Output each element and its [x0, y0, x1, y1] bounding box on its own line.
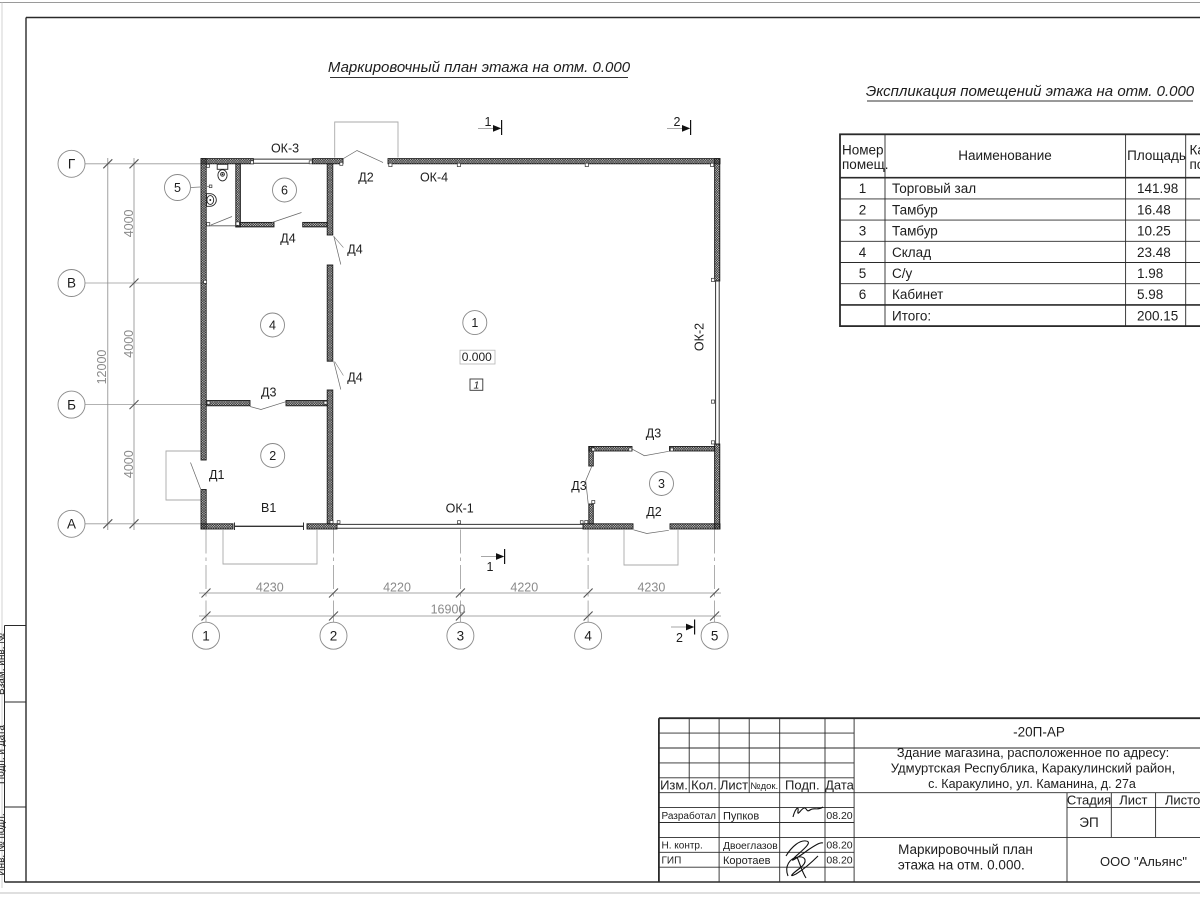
svg-text:Д3: Д3: [571, 479, 586, 493]
svg-text:Ка: Ка: [1190, 142, 1200, 157]
svg-text:141.98: 141.98: [1137, 181, 1178, 196]
svg-text:4000: 4000: [122, 209, 136, 237]
svg-text:№док.: №док.: [750, 781, 778, 792]
svg-text:2: 2: [269, 449, 276, 463]
svg-text:200.15: 200.15: [1137, 308, 1178, 323]
svg-text:08.20: 08.20: [826, 810, 852, 822]
svg-text:ОК-3: ОК-3: [271, 142, 299, 156]
svg-text:1: 1: [202, 629, 210, 644]
svg-text:Маркировочный план этажа на от: Маркировочный план этажа на отм. 0.000: [328, 59, 631, 76]
svg-text:Номер: Номер: [842, 142, 884, 157]
svg-text:5: 5: [174, 181, 181, 195]
svg-text:08.20: 08.20: [826, 855, 852, 867]
svg-text:2: 2: [330, 629, 338, 644]
svg-text:16900: 16900: [431, 603, 466, 617]
svg-text:4230: 4230: [256, 581, 284, 595]
svg-text:Площадь: Площадь: [1127, 148, 1186, 163]
svg-text:этажа на отм. 0.000.: этажа на отм. 0.000.: [898, 858, 1025, 873]
svg-text:Д4: Д4: [347, 370, 362, 384]
svg-text:Д3: Д3: [261, 385, 276, 399]
svg-text:2: 2: [674, 115, 681, 129]
svg-text:Подп.: Подп.: [785, 778, 820, 793]
svg-text:Коротаев: Коротаев: [723, 855, 771, 867]
svg-text:Тамбур: Тамбур: [892, 224, 938, 239]
svg-text:5: 5: [711, 629, 719, 644]
svg-text:4000: 4000: [122, 450, 136, 478]
svg-text:4: 4: [584, 629, 592, 644]
svg-text:В1: В1: [261, 501, 276, 515]
svg-text:Итого:: Итого:: [892, 308, 931, 323]
svg-text:Дата: Дата: [825, 778, 855, 793]
svg-text:4220: 4220: [510, 581, 538, 595]
svg-text:Двоеглазов: Двоеглазов: [723, 841, 778, 852]
svg-text:Инв. № подл.: Инв. № подл.: [0, 813, 7, 875]
svg-text:Подп. и дата: Подп. и дата: [0, 725, 7, 784]
svg-text:Б: Б: [67, 397, 76, 412]
svg-text:1: 1: [473, 379, 479, 391]
svg-text:0.000: 0.000: [462, 350, 492, 364]
svg-text:Тамбур: Тамбур: [892, 202, 938, 217]
svg-text:Торговый зал: Торговый зал: [892, 181, 976, 196]
svg-text:Лист: Лист: [720, 778, 748, 793]
svg-text:4: 4: [859, 245, 867, 260]
svg-text:Д1: Д1: [209, 468, 224, 482]
svg-text:Д4: Д4: [280, 232, 295, 246]
svg-text:Склад: Склад: [892, 245, 931, 260]
svg-text:ОК-4: ОК-4: [420, 171, 448, 185]
svg-text:Здание магазина, расположенное: Здание магазина, расположенное по адресу…: [897, 745, 1169, 760]
svg-text:с. Каракулино, ул. Каманина, д: с. Каракулино, ул. Каманина, д. 27а: [928, 777, 1136, 791]
svg-text:Г: Г: [68, 157, 76, 172]
svg-text:1.98: 1.98: [1137, 266, 1163, 281]
svg-text:ЭП: ЭП: [1079, 815, 1098, 830]
svg-text:3: 3: [457, 629, 465, 644]
svg-text:С/у: С/у: [892, 266, 913, 281]
svg-text:2: 2: [676, 631, 683, 645]
svg-text:2: 2: [859, 202, 867, 217]
svg-text:Удмуртская Республика, Каракул: Удмуртская Республика, Каракулинский рай…: [891, 761, 1175, 776]
svg-text:Д2: Д2: [358, 171, 373, 185]
svg-text:16.48: 16.48: [1137, 202, 1171, 217]
svg-text:Кабинет: Кабинет: [892, 287, 943, 302]
svg-text:3: 3: [658, 477, 665, 491]
svg-text:Лист: Лист: [1119, 793, 1147, 808]
svg-text:1: 1: [487, 560, 494, 574]
svg-text:помещ.: помещ.: [842, 157, 888, 172]
svg-text:ГИП: ГИП: [662, 856, 682, 867]
svg-text:6: 6: [281, 184, 288, 198]
svg-text:Д4: Д4: [347, 242, 362, 256]
svg-text:Маркировочный план: Маркировочный план: [898, 842, 1033, 857]
svg-text:4: 4: [269, 319, 276, 333]
svg-text:ОК-1: ОК-1: [446, 501, 474, 515]
svg-text:-20П-АР: -20П-АР: [1013, 725, 1065, 740]
svg-text:3: 3: [859, 224, 867, 239]
svg-text:5: 5: [859, 266, 867, 281]
svg-text:Стадия: Стадия: [1067, 793, 1111, 808]
svg-text:Кол.: Кол.: [691, 778, 717, 793]
svg-text:4000: 4000: [122, 330, 136, 358]
svg-text:Листов: Листов: [1165, 793, 1200, 808]
svg-text:12000: 12000: [95, 350, 109, 385]
svg-text:А: А: [67, 517, 76, 532]
svg-text:1: 1: [471, 316, 478, 330]
svg-text:Разработал: Разработал: [662, 810, 717, 822]
svg-text:4230: 4230: [637, 581, 665, 595]
svg-text:Н. контр.: Н. контр.: [662, 841, 703, 852]
svg-text:4220: 4220: [383, 581, 411, 595]
svg-text:1: 1: [859, 181, 867, 196]
svg-text:Изм.: Изм.: [660, 778, 688, 793]
svg-text:по: по: [1190, 157, 1200, 172]
svg-text:В: В: [67, 276, 76, 291]
svg-text:Д2: Д2: [646, 505, 661, 519]
svg-text:10.25: 10.25: [1137, 224, 1171, 239]
svg-text:ООО "Альянс": ООО "Альянс": [1100, 854, 1187, 869]
svg-text:23.48: 23.48: [1137, 245, 1171, 260]
svg-text:1: 1: [485, 115, 492, 129]
svg-text:6: 6: [859, 287, 867, 302]
svg-text:5.98: 5.98: [1137, 287, 1163, 302]
svg-text:Д3: Д3: [646, 426, 661, 440]
svg-text:08.20: 08.20: [826, 840, 852, 852]
svg-text:ОК-2: ОК-2: [693, 323, 707, 351]
svg-text:Наименование: Наименование: [958, 148, 1052, 163]
svg-text:Экспликация помещений этажа на: Экспликация помещений этажа на отм. 0.00…: [866, 83, 1195, 100]
svg-text:Пупков: Пупков: [723, 810, 759, 822]
svg-text:Взам. инв. №: Взам. инв. №: [0, 633, 7, 695]
